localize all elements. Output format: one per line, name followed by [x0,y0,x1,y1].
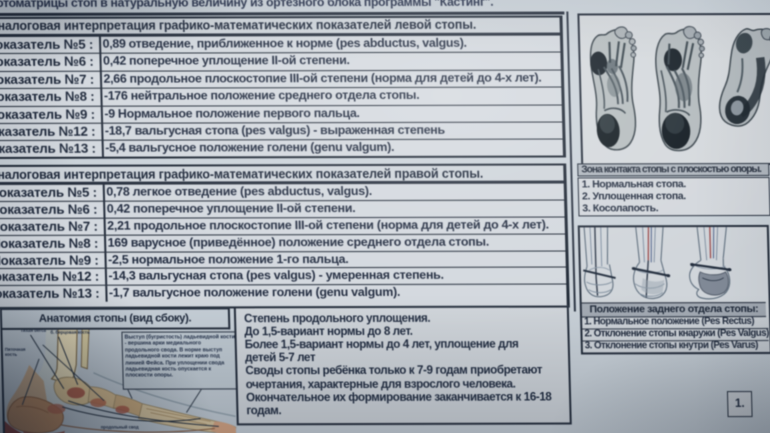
svg-text:кость: кость [5,352,17,357]
svg-text:б. берцовая кость: б. берцовая кость [50,330,90,335]
svg-text:продольный свод: продольный свод [101,425,139,430]
svg-text:Тихая berca: Тихая berca [20,329,46,333]
